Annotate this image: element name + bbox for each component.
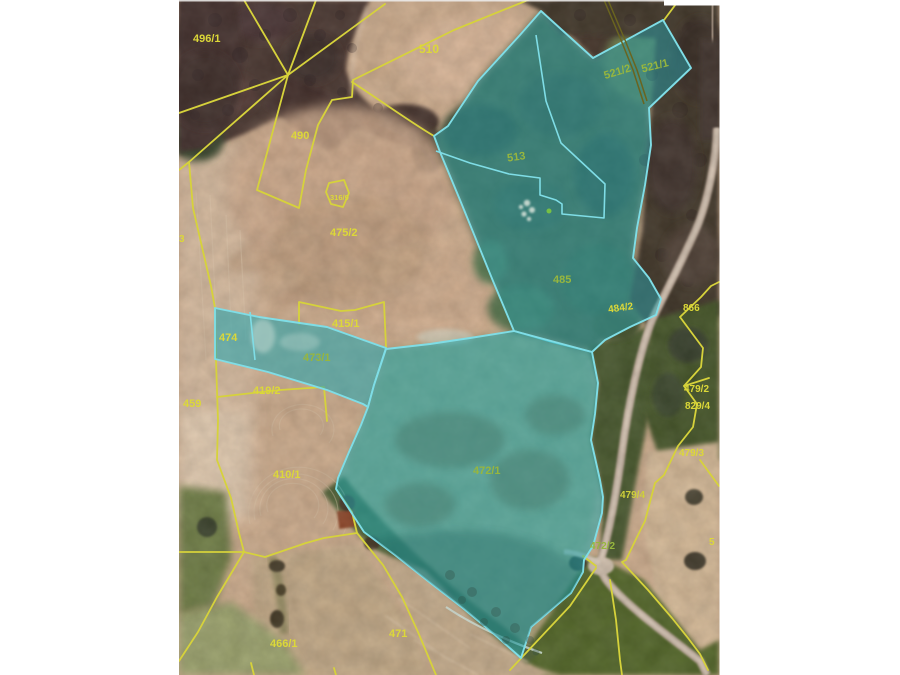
svg-text:415/1: 415/1: [332, 318, 360, 330]
svg-text:479/2: 479/2: [684, 384, 709, 395]
svg-text:829/4: 829/4: [685, 401, 710, 412]
svg-text:419/2: 419/2: [253, 385, 281, 397]
svg-text:510: 510: [419, 42, 439, 56]
svg-text:3: 3: [179, 234, 185, 245]
svg-text:472/1: 472/1: [473, 465, 501, 477]
svg-text:490: 490: [291, 130, 309, 142]
svg-text:474: 474: [219, 332, 238, 344]
svg-text:866: 866: [683, 303, 700, 314]
svg-text:473/1: 473/1: [303, 352, 331, 364]
svg-text:513: 513: [506, 150, 526, 164]
svg-text:472/2: 472/2: [590, 541, 615, 552]
svg-text:5: 5: [709, 537, 715, 548]
svg-text:471: 471: [389, 628, 407, 640]
svg-text:410/1: 410/1: [273, 469, 301, 481]
svg-text:475/2: 475/2: [330, 227, 358, 239]
svg-text:316/9: 316/9: [330, 193, 349, 202]
svg-text:496/1: 496/1: [193, 33, 221, 45]
svg-text:459: 459: [183, 398, 201, 410]
svg-text:466/1: 466/1: [270, 638, 298, 650]
svg-text:485: 485: [553, 274, 571, 286]
svg-text:479/4: 479/4: [620, 490, 645, 501]
svg-text:479/3: 479/3: [679, 448, 704, 459]
